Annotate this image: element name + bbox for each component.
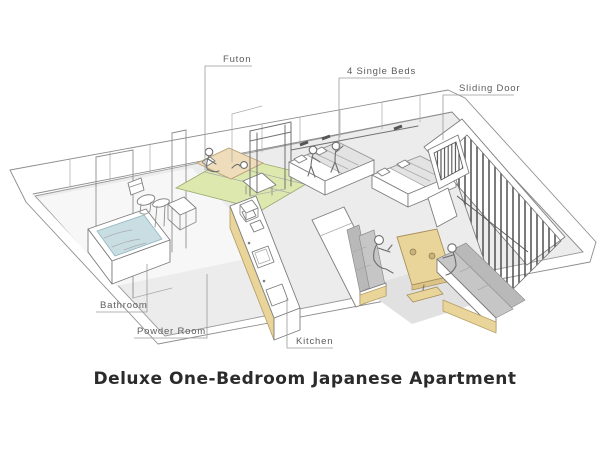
- table-cup: [410, 249, 416, 255]
- label-sliding-door: Sliding Door: [459, 83, 520, 94]
- apartment-isometric-drawing: Futon 4 Single Beds Sliding Door Bathroo…: [0, 0, 600, 450]
- drawing-title: Deluxe One-Bedroom Japanese Apartment: [93, 369, 516, 389]
- label-futon: Futon: [223, 54, 251, 65]
- sketch-canvas: Futon 4 Single Beds Sliding Door Bathroo…: [0, 0, 600, 450]
- label-powder-room: Powder Room: [137, 326, 206, 337]
- table-cup: [429, 253, 435, 259]
- label-single-beds: 4 Single Beds: [347, 66, 416, 77]
- label-bathroom: Bathroom: [100, 300, 148, 311]
- label-kitchen: Kitchen: [296, 336, 333, 347]
